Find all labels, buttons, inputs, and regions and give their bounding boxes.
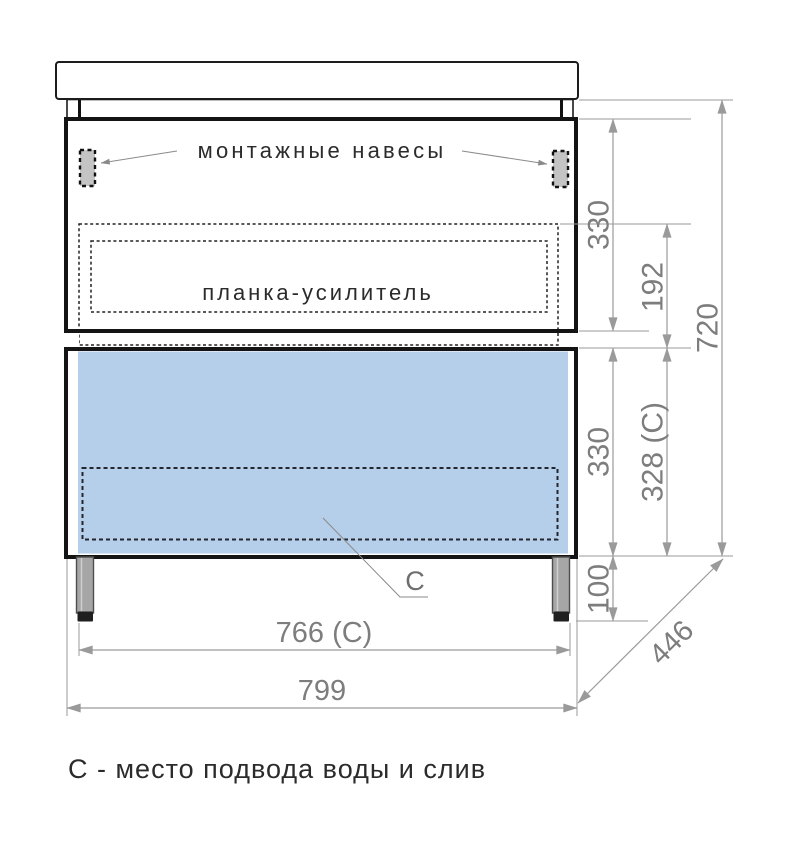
dim-799: 799 [298,675,346,707]
dim-328-c: 328 (С) [637,402,670,502]
countertop [56,62,578,99]
leg-right-foot [554,612,570,622]
leg-left [77,557,94,613]
footnote-drain-explanation: С - место подвода воды и слив [68,754,486,784]
dim-720: 720 [692,303,725,353]
mounting-hangers-label: монтажные навесы [198,138,447,163]
dim-192: 192 [637,262,670,312]
vanity-technical-drawing: планка-усилитель монтажные навесы С [0,0,800,845]
drawing-svg: планка-усилитель монтажные навесы С [0,0,800,845]
leg-left-foot [78,612,94,622]
leg-right [553,557,570,613]
dim-446-depth: 446 [643,614,700,671]
drawer-front [78,352,568,554]
right-side-panel-section [559,333,573,347]
dim-100: 100 [583,564,616,614]
dim-766-c: 766 (С) [276,617,373,649]
dim-330-bottom: 330 [583,427,616,477]
reinforcement-strip-label: планка-усилитель [202,280,434,305]
mounting-bracket-left [80,150,95,186]
mounting-bracket-right [553,151,568,187]
dim-330-top: 330 [583,200,616,250]
drain-c-marker: С [405,566,425,596]
left-side-panel-section [68,333,79,347]
sink-apron-rail [67,100,573,120]
